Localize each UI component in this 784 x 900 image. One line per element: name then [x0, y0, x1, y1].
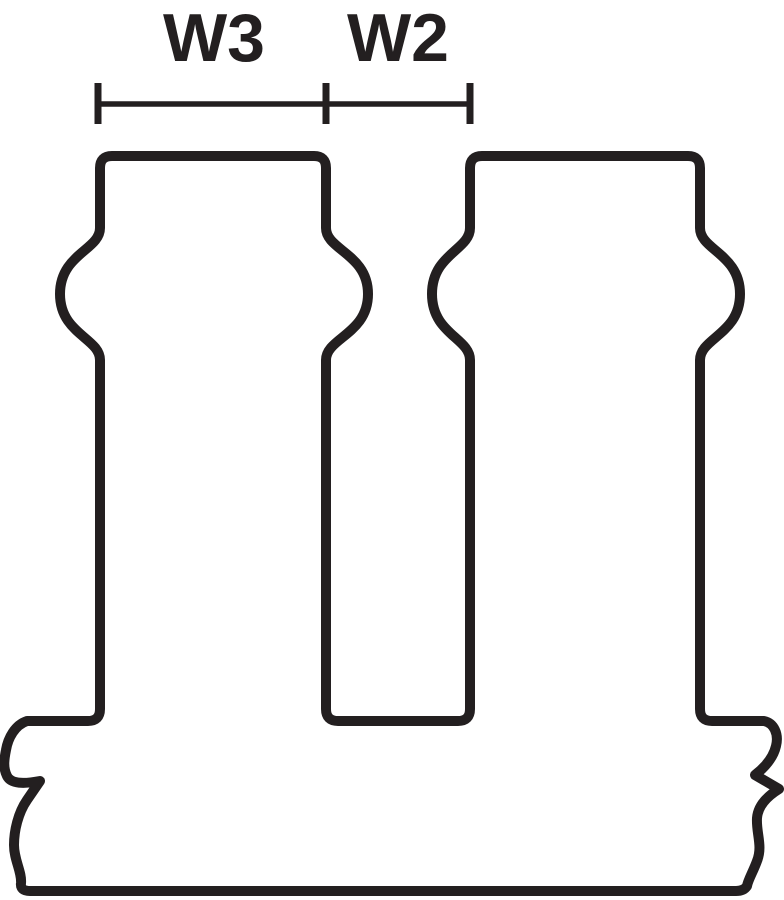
dimension-label-w2: W2 — [347, 0, 449, 76]
duct-finger-profile-diagram: W3 W2 — [0, 0, 784, 900]
dimension-label-w3: W3 — [163, 0, 265, 76]
figure-canvas: W3 W2 — [0, 0, 784, 900]
duct-profile-outline — [4, 156, 779, 891]
